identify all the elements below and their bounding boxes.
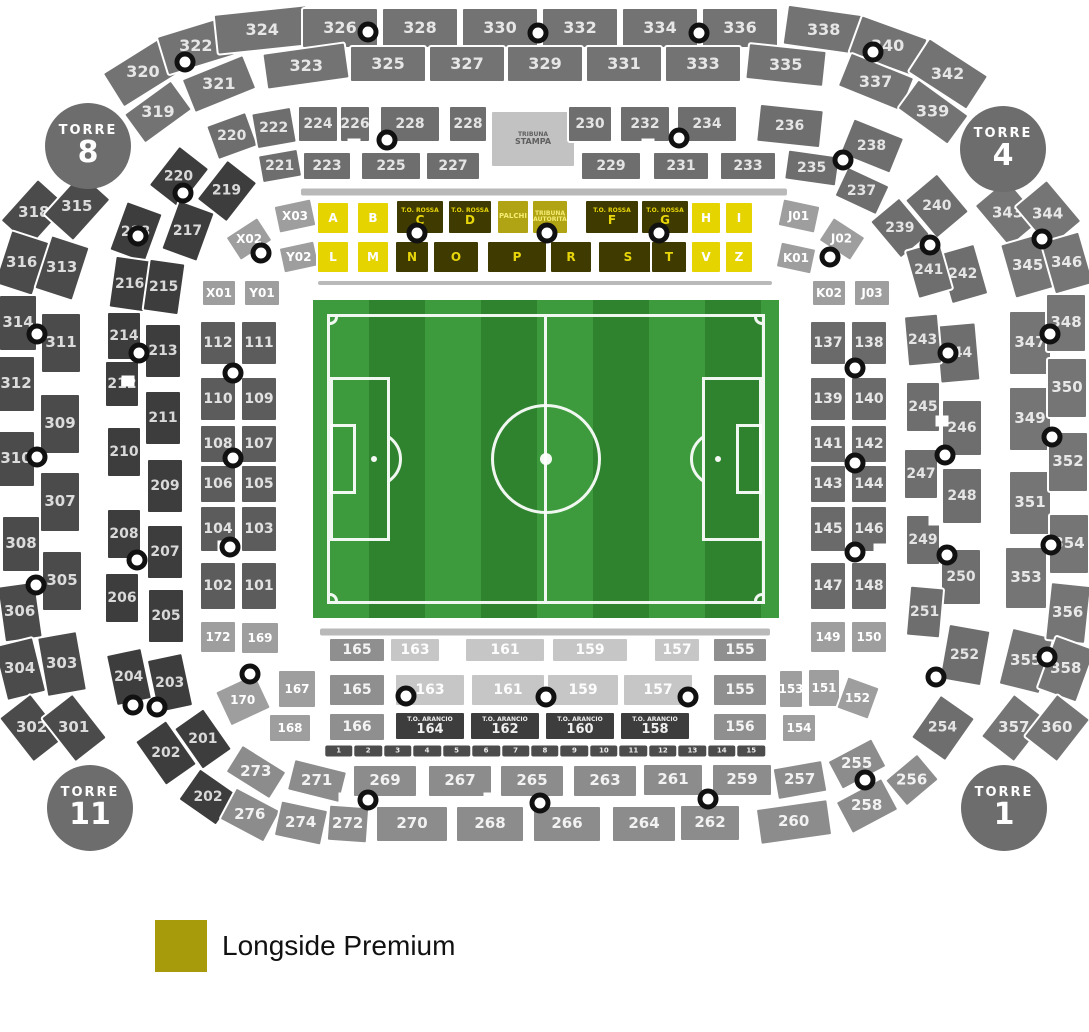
section-label: 157 [643,683,672,698]
section-143[interactable]: 143 [809,464,847,504]
section-label: O [451,251,461,264]
section-label: 274 [285,815,316,831]
section-305[interactable]: 305 [41,550,83,612]
section-label: 349 [1014,411,1045,427]
section-label: 320 [126,64,159,81]
entrance-dot [698,789,719,810]
section-label: 169 [247,632,272,645]
section-label: 351 [1014,495,1045,511]
section-label: 145 [813,522,842,537]
section-111[interactable]: 111 [240,320,278,366]
section-160[interactable]: T.O. ARANCIO160 [544,711,616,741]
section-label: 331 [607,56,640,73]
section-label: K01 [783,252,809,265]
section-301[interactable]: 301 [40,692,109,764]
section-154[interactable]: 154 [781,713,817,743]
section-334[interactable]: 334 [621,7,699,49]
section-308[interactable]: 308 [1,515,41,573]
section-label: 220 [217,129,246,144]
section-327[interactable]: 327 [428,45,506,83]
section-251[interactable]: 251 [905,585,945,640]
section-165[interactable]: 165 [328,673,386,707]
section-236[interactable]: 236 [755,103,825,150]
section-label: 213 [148,344,177,359]
section-360[interactable]: 360 [1022,692,1089,763]
section-164[interactable]: T.O. ARANCIO164 [394,711,466,741]
section-150[interactable]: 150 [850,620,888,654]
section-X01[interactable]: X01 [201,279,237,307]
section-label: 172 [205,631,230,644]
section-label: H [701,212,711,225]
section-STAMPA[interactable]: TRIBUNASTAMPA [490,110,576,168]
section-label: 166 [342,720,371,735]
section-229[interactable]: 229 [580,151,642,181]
section-209[interactable]: 209 [146,458,184,514]
section-226[interactable]: 226 [339,105,371,143]
row-number-cell: 3 [383,744,412,757]
entrance-dot [240,664,261,685]
section-label: 323 [289,58,322,75]
entrance-dot [536,687,557,708]
section-205[interactable]: 205 [147,588,185,644]
section-332[interactable]: 332 [541,7,619,49]
section-label: 152 [845,692,870,705]
section-label: 312 [0,376,31,392]
section-257[interactable]: 257 [771,759,828,802]
section-165[interactable]: 165 [328,637,386,663]
section-J01[interactable]: J01 [776,197,821,235]
gate-marker [642,139,655,150]
tower-number: 11 [69,800,111,830]
section-F[interactable]: T.O. ROSSAF [584,199,640,235]
stadium-map: Longside Premium 32032232432632833033233… [0,0,1089,1032]
section-label: 158 [641,723,668,737]
section-label: 306 [4,604,35,620]
section-172[interactable]: 172 [199,620,237,654]
section-153[interactable]: 153 [778,669,804,709]
section-label: 313 [46,260,77,276]
section-311[interactable]: 311 [40,312,82,374]
section-210[interactable]: 210 [106,426,142,478]
section-333[interactable]: 333 [664,45,742,83]
section-309[interactable]: 309 [39,393,81,455]
section-label: 161 [493,683,522,698]
section-label: Z [735,251,744,264]
section-label: 221 [265,159,294,174]
section-label: 236 [775,119,804,134]
row-number-cell: 8 [530,744,559,757]
section-168[interactable]: 168 [268,713,312,743]
section-217[interactable]: 217 [160,199,216,263]
section-label: 242 [948,267,977,282]
section-163[interactable]: 163 [389,637,441,663]
section-label: 154 [786,722,811,735]
section-label: 168 [277,722,302,735]
section-label: 214 [109,329,138,344]
section-label: 338 [807,22,840,39]
section-D[interactable]: T.O. ROSSAD [447,199,493,235]
section-159[interactable]: 159 [546,673,620,707]
section-label: 138 [854,336,883,351]
section-259[interactable]: 259 [711,763,773,797]
legend-label: Longside Premium [222,930,455,962]
section-label: 332 [563,20,596,37]
section-label: 206 [107,591,136,606]
section-Z[interactable]: Z [724,240,754,274]
pitch-boundary [327,314,765,604]
section-I[interactable]: I [724,201,754,235]
entrance-dot [1032,229,1053,250]
gate-marker [929,515,942,526]
section-331[interactable]: 331 [585,45,663,83]
section-109[interactable]: 109 [240,376,278,422]
section-label: 147 [813,579,842,594]
pitch-center-spot [540,453,552,465]
section-103[interactable]: 103 [240,505,278,553]
section-label: 335 [769,57,802,74]
entrance-dot [938,343,959,364]
section-233[interactable]: 233 [719,151,777,181]
section-label: 146 [854,522,883,537]
gate-marker [484,793,497,804]
section-label: 315 [61,199,92,215]
section-label: 307 [44,494,75,510]
section-label: 170 [230,694,255,707]
section-label: 227 [438,159,467,174]
section-label: 143 [813,477,842,492]
section-K01[interactable]: K01 [775,240,818,275]
gate-marker [761,796,774,807]
section-215[interactable]: 215 [141,258,186,317]
section-243[interactable]: 243 [903,313,943,368]
section-312[interactable]: 312 [0,355,36,413]
section-label: 240 [922,199,951,214]
section-222[interactable]: 222 [250,106,298,151]
section-H[interactable]: H [690,201,722,235]
section-label: 153 [778,683,803,696]
section-label: 262 [694,815,725,831]
section-label: 157 [662,643,691,658]
section-329[interactable]: 329 [506,45,584,83]
section-label: 246 [947,421,976,436]
section-149[interactable]: 149 [809,620,847,654]
section-353[interactable]: 353 [1004,546,1048,610]
pitch-corner-arc [327,314,338,325]
entrance-dot [863,42,884,63]
tower-4: TORRE4 [960,106,1046,192]
row-number-cell: 12 [648,744,677,757]
row-number-cell: 5 [442,744,471,757]
section-A[interactable]: A [316,201,350,235]
section-101[interactable]: 101 [240,561,278,611]
section-label: V [701,251,710,264]
section-262[interactable]: 262 [679,804,741,842]
section-221[interactable]: 221 [257,148,304,185]
section-137[interactable]: 137 [809,320,847,366]
section-147[interactable]: 147 [809,561,847,611]
section-145[interactable]: 145 [809,505,847,553]
section-label: 269 [369,773,400,789]
entrance-dot [845,453,866,474]
section-label: Y02 [286,251,311,264]
section-label: 337 [859,74,892,91]
section-label: D [465,214,475,227]
section-J03[interactable]: J03 [853,279,891,307]
tower-number: 8 [78,138,99,168]
entrance-dot [377,130,398,151]
pitch-right-penalty-spot [715,456,721,462]
gate-marker [122,376,135,387]
section-139[interactable]: 139 [809,376,847,422]
section-107[interactable]: 107 [240,424,278,464]
section-225[interactable]: 225 [360,151,422,181]
section-325[interactable]: 325 [349,45,427,83]
section-227[interactable]: 227 [425,151,481,181]
section-label: 260 [778,814,809,830]
section-label: 254 [928,721,957,736]
section-231[interactable]: 231 [652,151,710,181]
section-label: 202 [193,790,222,805]
section-strip [319,628,771,637]
entrance-dot [530,793,551,814]
section-161[interactable]: 161 [470,673,546,707]
section-label: P [513,251,522,264]
pitch [313,300,779,618]
section-label: 237 [847,184,876,199]
section-V[interactable]: V [690,240,722,274]
section-label: F [608,214,616,227]
section-label: 305 [46,573,77,589]
section-label: 261 [657,772,688,788]
section-label: 210 [109,445,138,460]
section-228[interactable]: 228 [448,105,488,143]
section-213[interactable]: 213 [144,323,182,379]
section-label: 272 [332,816,363,832]
pitch-corner-arc [754,314,765,325]
section-label: L [329,251,337,264]
section-Y02[interactable]: Y02 [278,239,321,274]
section-254[interactable]: 254 [909,693,976,762]
section-167[interactable]: 167 [277,669,317,709]
section-label: 326 [323,20,356,37]
section-X03[interactable]: X03 [272,197,317,235]
section-label: 267 [444,773,475,789]
section-label: 209 [150,479,179,494]
pitch-left-goal-area [330,424,356,494]
entrance-dot [358,790,379,811]
section-224[interactable]: 224 [297,105,339,143]
section-label: 161 [490,643,519,658]
gate-marker [874,544,887,555]
section-R[interactable]: R [549,240,593,274]
section-label: 165 [342,683,371,698]
section-label: 219 [212,184,241,199]
section-270[interactable]: 270 [375,805,449,843]
entrance-dot [920,235,941,256]
section-label: 333 [686,56,719,73]
row-number-cell: 2 [353,744,382,757]
section-label: 319 [141,104,174,121]
tower-number: 4 [993,141,1014,171]
entrance-dot [123,695,144,716]
section-328[interactable]: 328 [381,7,459,49]
section-label: 112 [203,336,232,351]
section-label: 151 [811,682,836,695]
section-N[interactable]: N [394,240,430,274]
entrance-dot [537,223,558,244]
section-label: 205 [151,609,180,624]
section-248[interactable]: 248 [941,467,983,525]
section-label: 342 [931,66,964,83]
section-B[interactable]: B [356,201,390,235]
section-162[interactable]: T.O. ARANCIO162 [469,711,541,741]
row-number-cell: 13 [678,744,707,757]
section-label: 265 [516,773,547,789]
section-351[interactable]: 351 [1008,470,1052,536]
section-235[interactable]: 235 [783,148,841,187]
entrance-dot [1037,647,1058,668]
section-158[interactable]: T.O. ARANCIO158 [619,711,691,741]
section-223[interactable]: 223 [302,151,352,181]
section-207[interactable]: 207 [146,524,184,580]
section-label: 102 [203,579,232,594]
section-102[interactable]: 102 [199,561,237,611]
section-Y01[interactable]: Y01 [243,279,281,307]
section-label: 334 [643,20,676,37]
entrance-dot [27,447,48,468]
entrance-dot [1040,324,1061,345]
section-169[interactable]: 169 [240,621,280,655]
section-M[interactable]: M [356,240,390,274]
section-label: R [566,251,575,264]
entrance-dot [26,575,47,596]
section-155[interactable]: 155 [712,637,768,663]
section-155[interactable]: 155 [712,673,768,707]
section-label: 231 [666,159,695,174]
entrance-dot [926,667,947,688]
section-label: 104 [203,522,232,537]
section-label: 160 [566,723,593,737]
section-label: 217 [173,224,202,239]
section-350[interactable]: 350 [1046,357,1088,419]
section-label: 329 [528,56,561,73]
section-label: STAMPA [515,138,551,146]
section-label: 276 [234,807,265,823]
entrance-dot [223,448,244,469]
section-label: Y01 [249,287,274,300]
section-106[interactable]: 106 [199,464,237,504]
section-label: J03 [861,287,882,300]
section-K02[interactable]: K02 [811,279,847,307]
section-261[interactable]: 261 [642,763,704,797]
section-O[interactable]: O [432,240,480,274]
entrance-dot [689,23,710,44]
section-264[interactable]: 264 [611,805,677,843]
section-label: 301 [58,720,89,736]
section-PALCHI[interactable]: PALCHI [496,199,530,235]
row-number-cell: 11 [619,744,648,757]
section-label: I [737,212,741,225]
section-263[interactable]: 263 [572,764,638,798]
section-230[interactable]: 230 [567,105,613,143]
section-label: 228 [453,117,482,132]
section-307[interactable]: 307 [39,471,81,533]
section-157[interactable]: 157 [653,637,701,663]
section-label: 270 [396,816,427,832]
section-label: 141 [813,437,842,452]
section-label: 223 [312,159,341,174]
section-label: 203 [155,676,184,691]
section-label: 226 [340,117,369,132]
section-161[interactable]: 161 [464,637,546,663]
section-P[interactable]: P [486,240,548,274]
entrance-dot [128,226,149,247]
section-label: 324 [245,22,278,39]
section-label: 142 [854,437,883,452]
section-label: 264 [628,816,659,832]
section-label: 360 [1041,720,1072,736]
section-label: 339 [916,104,949,121]
section-232[interactable]: 232 [619,105,671,143]
section-141[interactable]: 141 [809,424,847,464]
section-152[interactable]: 152 [835,675,881,721]
section-label: 249 [908,533,937,548]
section-label: 105 [244,477,273,492]
section-151[interactable]: 151 [807,668,841,708]
entrance-dot [855,770,876,791]
section-356[interactable]: 356 [1044,581,1089,645]
tower-8: TORRE8 [45,103,131,189]
section-label: 344 [1032,206,1063,222]
pitch-corner-arc [754,593,765,604]
entrance-dot [845,358,866,379]
section-211[interactable]: 211 [144,390,182,446]
section-L[interactable]: L [316,240,350,274]
gate-marker [348,139,361,150]
section-label: 216 [115,277,144,292]
section-105[interactable]: 105 [240,464,278,504]
section-268[interactable]: 268 [455,805,525,843]
section-label: 308 [5,536,36,552]
pitch-right-goal-area [736,424,762,494]
section-label: 150 [856,631,881,644]
section-label: 263 [589,773,620,789]
section-label: 101 [244,579,273,594]
section-206[interactable]: 206 [104,572,140,624]
section-label: 224 [303,117,332,132]
section-label: J01 [788,210,809,223]
section-148[interactable]: 148 [850,561,888,611]
section-112[interactable]: 112 [199,320,237,366]
row-number-cell: 1 [324,744,353,757]
section-265[interactable]: 265 [499,764,565,798]
section-140[interactable]: 140 [850,376,888,422]
entrance-dot [147,697,168,718]
entrance-dot [358,22,379,43]
section-156[interactable]: 156 [712,712,768,742]
section-label: X01 [206,287,232,300]
section-166[interactable]: 166 [328,712,386,742]
entrance-dot [175,52,196,73]
section-336[interactable]: 336 [701,7,779,49]
section-159[interactable]: 159 [551,637,629,663]
entrance-dot [528,23,549,44]
section-274[interactable]: 274 [273,799,330,847]
section-335[interactable]: 335 [744,42,828,88]
section-label: 155 [725,643,754,658]
section-label: N [407,251,417,264]
section-T[interactable]: T [650,240,688,274]
